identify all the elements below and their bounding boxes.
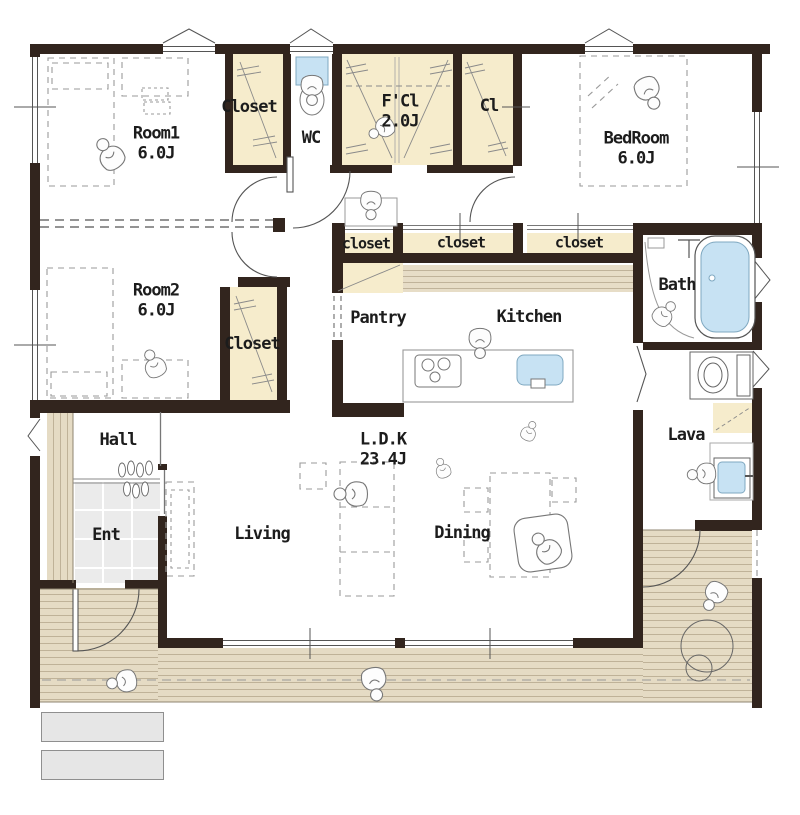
bath-folding-door [637, 346, 646, 402]
wall [332, 54, 342, 173]
person-figure [361, 191, 382, 219]
person-figure [301, 75, 323, 105]
wc-door-arc [293, 171, 350, 228]
wall-outer-left [30, 44, 40, 708]
fcl-label: F'Cl 2.0J [382, 92, 419, 131]
wall-bath-north [633, 223, 762, 235]
wood-deck-bottom [158, 648, 643, 702]
closet-top-label: Closet [221, 98, 276, 118]
movable-partition [40, 220, 273, 227]
wall [238, 277, 290, 287]
pantry-opening [334, 296, 341, 338]
person-figure [519, 419, 541, 443]
wall [158, 516, 167, 648]
wall [335, 253, 635, 263]
kitchen-label: Kitchen [497, 308, 562, 328]
person-figure [89, 133, 128, 174]
wall [125, 580, 158, 589]
person-figure [649, 297, 681, 330]
person-figure [631, 73, 667, 114]
living-label: Living [234, 525, 289, 545]
wall-outer-right [752, 44, 762, 708]
person-figure [469, 328, 491, 358]
floor-plan: Room1 6.0J Closet WC F'Cl 2.0J Cl BedRoo… [0, 0, 800, 815]
toilet [296, 57, 328, 115]
kitchen-sink [517, 355, 563, 385]
ent-label: Ent [92, 526, 120, 546]
person-figure [686, 462, 716, 485]
wall [158, 464, 167, 470]
wall [40, 580, 76, 589]
person-figure [334, 482, 368, 506]
kitchen-back-counter [403, 265, 635, 292]
bedroom-label: BedRoom 6.0J [604, 129, 669, 168]
wall [158, 400, 167, 412]
room2-label: Room2 6.0J [133, 281, 179, 320]
lava-label: Lava [668, 426, 705, 446]
entry-step-2 [41, 750, 164, 780]
wall [453, 54, 462, 173]
closet-top-door-arc [232, 177, 277, 222]
wall-bath-washer [643, 342, 753, 350]
washing-machine [690, 352, 753, 399]
bath-label: Bath [659, 276, 696, 296]
wall-lava-south [695, 520, 752, 531]
wall-door-post [273, 218, 285, 232]
wood-deck-left [40, 588, 158, 702]
wall [513, 54, 522, 166]
wall [330, 165, 392, 173]
wall [427, 165, 513, 173]
ldk-label: L.D.K 23.4J [360, 430, 406, 469]
closet-strip2-label: closet [437, 234, 485, 251]
kitchen-island [403, 350, 573, 402]
wash-basin [710, 443, 753, 500]
wall [283, 54, 291, 173]
person-figure [138, 346, 169, 381]
person-figure [432, 456, 453, 480]
person-figure [525, 527, 565, 568]
wall-ldk-south-1 [158, 638, 223, 648]
faucet [531, 379, 545, 388]
wall-outer-top [30, 44, 770, 54]
room2-door-arc [232, 232, 277, 277]
closet-strip1-label: closet [342, 235, 390, 252]
wall [332, 263, 343, 293]
pantry-label: Pantry [350, 309, 405, 329]
lava-cabinet [713, 403, 753, 433]
desk-nook [345, 198, 397, 226]
wall-bath-west [633, 223, 643, 343]
wall-ldk-south-2 [395, 638, 405, 648]
dining-armchair [513, 513, 574, 574]
cooktop [415, 355, 461, 387]
pantry-cabinet [335, 263, 403, 293]
dining-label: Dining [434, 524, 489, 544]
closet-strip3-label: closet [555, 234, 603, 251]
wood-deck-right [643, 530, 752, 702]
wood-deck-west [47, 413, 73, 583]
entry-step-1 [41, 712, 164, 742]
hall-label: Hall [100, 431, 137, 451]
wall [225, 165, 288, 173]
closet-room2-label: Closet [224, 335, 279, 355]
sliding-door-hall [161, 412, 165, 514]
bedroom-door-arc [470, 177, 515, 222]
wall-lava-west [633, 410, 643, 648]
wall-pantry-south [332, 403, 404, 417]
wc-label: WC [302, 129, 320, 149]
room1-label: Room1 6.0J [133, 124, 179, 163]
cl-label: Cl [480, 97, 498, 117]
